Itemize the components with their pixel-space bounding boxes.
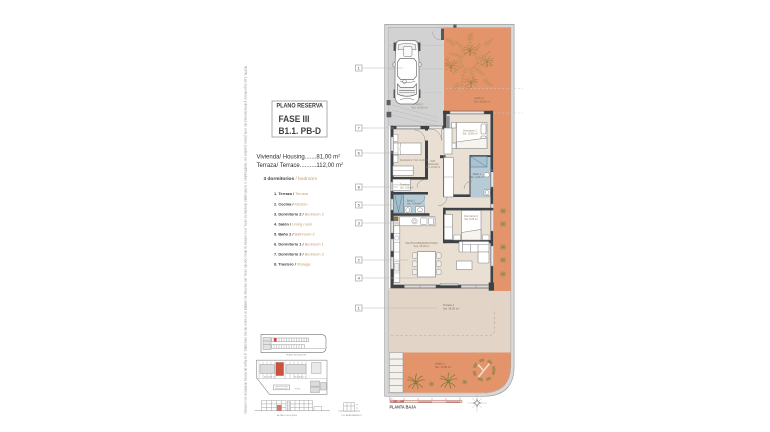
svg-text:Sol. 74,00 m²: Sol. 74,00 m²: [435, 365, 451, 369]
svg-text:3: 3: [358, 221, 360, 226]
svg-text:P.B. APARTAMENTO: P.B. APARTAMENTO: [342, 414, 363, 417]
svg-text:3 dormitorios / bedroom: 3 dormitorios / bedroom: [264, 176, 318, 182]
svg-text:Terraza/ Terrace..........112,: Terraza/ Terrace..........112,00 m2: [257, 161, 344, 169]
svg-text:7: 7: [358, 126, 360, 131]
svg-text:5. Baño 2 / Bathroom 2: 5. Baño 2 / Bathroom 2: [274, 231, 315, 236]
svg-text:BLOQUE 1.2: BLOQUE 1.2: [264, 377, 277, 379]
svg-text:ALZADO BLOQUES: ALZADO BLOQUES: [277, 414, 297, 417]
svg-text:Terraza 1: Terraza 1: [443, 303, 455, 307]
svg-text:5: 5: [358, 203, 360, 208]
svg-text:Sol. 10,50 m²: Sol. 10,50 m²: [463, 133, 478, 136]
svg-text:BLOQUE 1.1: BLOQUE 1.1: [294, 377, 307, 379]
svg-text:2: 2: [358, 258, 360, 263]
svg-text:Sol. 36,00 m²: Sol. 36,00 m²: [443, 307, 459, 311]
svg-text:0 1 2: 0 1 2: [389, 399, 395, 401]
svg-text:FASE III: FASE III: [279, 114, 310, 125]
svg-text:Sol. 4,00 m²: Sol. 4,00 m²: [470, 176, 484, 179]
svg-text:1: 1: [358, 306, 360, 311]
svg-text:Dormitorio 2 / Sol. 10,20 m²: Dormitorio 2 / Sol. 10,20 m²: [400, 159, 428, 162]
svg-text:6: 6: [358, 151, 360, 156]
svg-text:Jardín 2: Jardín 2: [474, 96, 484, 100]
svg-text:2. Cocina / Kitchen: 2. Cocina / Kitchen: [274, 201, 308, 206]
svg-text:8: 8: [358, 185, 360, 190]
svg-text:6. Dormitorio 1 / Bedroom 1: 6. Dormitorio 1 / Bedroom 1: [274, 242, 324, 247]
svg-text:Sol. 3,50 m²: Sol. 3,50 m²: [400, 187, 414, 190]
svg-text:7. Dormitorio 3 / Bedroom 3: 7. Dormitorio 3 / Bedroom 3: [274, 251, 324, 256]
svg-text:4. Salón / Living room: 4. Salón / Living room: [274, 221, 312, 226]
svg-text:Sol. 24,50 m²: Sol. 24,50 m²: [412, 105, 428, 109]
svg-text:Jardín 1: Jardín 1: [435, 362, 445, 366]
svg-text:POOL: POOL: [295, 389, 301, 391]
svg-text:Sup. 28,05 m²: Sup. 28,05 m²: [414, 245, 430, 248]
svg-text:Sol. 10,00 m²: Sol. 10,00 m²: [426, 166, 440, 169]
svg-text:1: 1: [358, 66, 360, 71]
svg-text:PLANO SITUACIÓN: PLANO SITUACIÓN: [286, 354, 306, 357]
svg-text:Vivienda/ Housing.......81,00: Vivienda/ Housing.......81,00 m2: [257, 153, 342, 161]
svg-text:3. Dormitorio 2 / Bedroom 2: 3. Dormitorio 2 / Bedroom 2: [274, 211, 324, 216]
svg-text:Sol. 99,00 m²: Sol. 99,00 m²: [474, 100, 490, 104]
svg-text:1. Terraza / Terraza: 1. Terraza / Terraza: [274, 191, 309, 196]
svg-text:NOTA: Las superficies y dimens: NOTA: Las superficies y dimensiones de e…: [244, 66, 248, 415]
svg-text:B1.1. PB-D: B1.1. PB-D: [279, 126, 322, 137]
svg-text:PLANO RESERVA: PLANO RESERVA: [277, 104, 324, 110]
svg-text:8. Trastero / Storage: 8. Trastero / Storage: [274, 262, 311, 267]
svg-text:Sol. 8,05 m²: Sol. 8,05 m²: [464, 218, 478, 221]
svg-text:PLANTA BAJA: PLANTA BAJA: [390, 405, 417, 411]
